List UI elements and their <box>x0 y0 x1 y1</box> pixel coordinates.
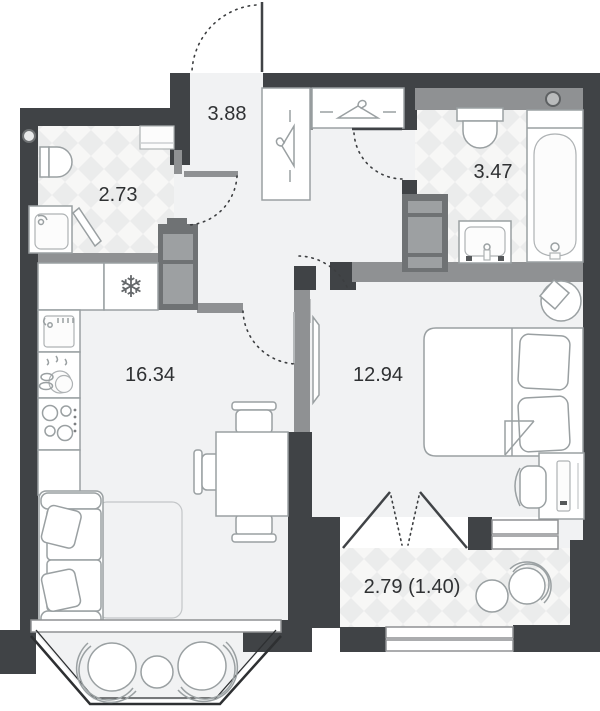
shelf-icon <box>140 126 174 149</box>
wall-segment <box>38 253 160 263</box>
counter-icon <box>38 450 80 495</box>
wall-segment <box>352 262 583 282</box>
chair-seat <box>236 410 272 434</box>
armchair-icon <box>88 643 136 691</box>
faucet-base <box>484 250 490 260</box>
vent-circle <box>546 92 560 106</box>
window <box>492 536 558 549</box>
toilet-icon <box>49 147 72 177</box>
washer-column-panel <box>408 257 442 268</box>
balcony-table-icon <box>476 580 508 612</box>
kitchen-sink-basin <box>44 316 74 347</box>
tv-icon <box>313 317 319 403</box>
window <box>492 520 558 534</box>
wall-segment <box>174 150 182 174</box>
pillow-icon <box>40 568 81 612</box>
room-label-bathroom: 3.47 <box>474 161 513 183</box>
sink-foot <box>466 256 472 261</box>
window <box>386 627 513 638</box>
bathtub-faucet-icon <box>550 253 560 259</box>
wardrobe-icon <box>312 88 404 128</box>
floor-plan-page: ❄ <box>0 0 600 711</box>
wc-door-leaf <box>184 171 238 177</box>
counter-icon <box>38 263 104 310</box>
wardrobe-icon <box>262 88 310 200</box>
bathtub-icon <box>534 134 576 256</box>
wall-segment <box>197 303 243 313</box>
pillow-icon <box>518 396 571 453</box>
chair-back <box>232 534 276 542</box>
room-label-wc: 2.73 <box>99 184 138 206</box>
toilet-tank-icon <box>40 147 49 177</box>
floor-plan-drawing: ❄ <box>0 0 600 711</box>
desk-handle <box>560 501 567 505</box>
washer-column-panel <box>408 201 442 213</box>
armchair-icon <box>178 642 226 690</box>
hall-cabinet-handle <box>167 218 187 226</box>
window <box>386 640 513 651</box>
wall-segment <box>340 627 386 652</box>
room-label-hallway: 3.88 <box>208 103 247 125</box>
washer-column-panel <box>408 217 442 253</box>
room-label-kitchen: 16.34 <box>125 364 175 386</box>
wall-segment <box>20 108 185 126</box>
desk-chair-seat <box>520 466 546 508</box>
wall-segment <box>288 432 312 652</box>
wall-segment <box>20 108 38 632</box>
floor-area <box>190 73 263 90</box>
wall-segment <box>312 517 340 628</box>
sofa <box>39 491 103 630</box>
room-label-bedroom: 12.94 <box>353 364 403 386</box>
chair-back <box>194 450 202 494</box>
chair-seat <box>236 514 272 536</box>
plate-icon <box>56 376 73 393</box>
entrance-door-arc <box>192 5 256 71</box>
wall-segment <box>513 625 600 652</box>
coffee-table-icon <box>141 656 173 688</box>
pillow-icon <box>518 334 571 391</box>
window-sill <box>31 620 281 632</box>
toilet-icon <box>463 121 497 148</box>
table-icon <box>216 432 288 516</box>
wall-segment <box>468 517 492 550</box>
vent-circle <box>23 130 35 142</box>
toilet-tank-icon <box>457 108 503 121</box>
hall-cabinet-door <box>163 234 193 260</box>
wall-segment <box>583 90 600 550</box>
balcony-chair-icon <box>509 568 545 604</box>
wall-segment <box>294 266 316 290</box>
fridge-snowflake-icon: ❄ <box>118 270 143 305</box>
chair-back <box>232 402 276 410</box>
room-label-balcony: 2.79 (1.40) <box>364 576 461 598</box>
hall-cabinet-door <box>163 264 193 304</box>
sink-foot <box>498 256 504 261</box>
